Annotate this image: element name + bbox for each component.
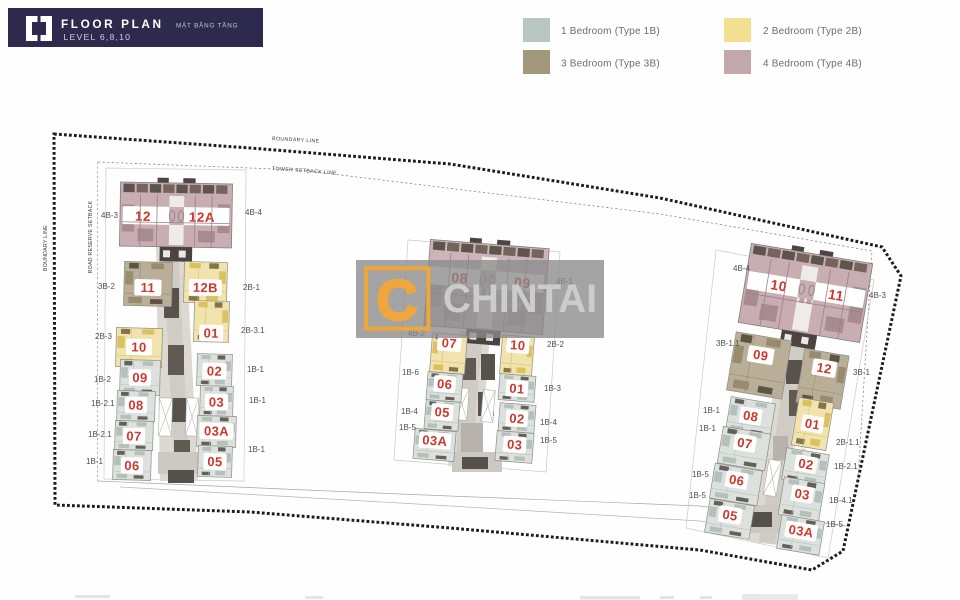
svg-text:09: 09 [132,370,148,385]
svg-text:3B-1: 3B-1 [853,368,870,377]
svg-text:12B: 12B [193,280,218,296]
svg-text:1B-2: 1B-2 [94,375,111,384]
svg-text:1B-1: 1B-1 [248,445,265,454]
svg-text:1B-2.1: 1B-2.1 [91,399,115,408]
svg-text:10: 10 [131,339,147,354]
svg-text:2 Bedroom (Type 2B): 2 Bedroom (Type 2B) [763,26,862,37]
svg-text:1B-4.1: 1B-4.1 [829,496,853,505]
svg-text:4B-4: 4B-4 [733,264,750,273]
svg-text:03A: 03A [422,432,448,449]
svg-text:1B-4: 1B-4 [540,418,557,427]
svg-text:01: 01 [203,325,219,340]
svg-text:10: 10 [510,337,526,353]
svg-text:1B-2.1: 1B-2.1 [834,462,858,471]
svg-text:2B-2: 2B-2 [547,340,564,349]
svg-text:03: 03 [794,486,812,503]
svg-text:07: 07 [126,428,142,443]
svg-text:4 Bedroom (Type 4B): 4 Bedroom (Type 4B) [763,59,862,70]
svg-text:02: 02 [207,363,223,378]
svg-text:1B-2.1: 1B-2.1 [88,430,112,439]
svg-text:CHINTAI: CHINTAI [443,277,597,321]
svg-text:05: 05 [207,454,223,469]
svg-text:1B-4: 1B-4 [401,407,418,416]
svg-text:2B-3.1: 2B-3.1 [241,326,265,335]
svg-text:09: 09 [752,347,770,364]
svg-text:2B-3: 2B-3 [95,332,112,341]
svg-text:08: 08 [128,397,144,412]
svg-text:1B-1: 1B-1 [699,424,716,433]
svg-text:FLOOR PLAN: FLOOR PLAN [61,17,164,31]
svg-text:LEVEL 6,8,10: LEVEL 6,8,10 [64,32,132,42]
svg-text:4B-3: 4B-3 [869,291,886,300]
svg-text:08: 08 [742,407,760,424]
svg-text:11: 11 [827,286,845,304]
svg-text:4B-3: 4B-3 [101,211,118,220]
svg-text:1B-1: 1B-1 [703,406,720,415]
svg-text:03: 03 [506,437,522,453]
svg-text:01: 01 [804,415,822,432]
svg-text:2B-1.1: 2B-1.1 [836,438,860,447]
svg-text:1 Bedroom (Type 1B): 1 Bedroom (Type 1B) [561,26,660,37]
svg-text:4B-4: 4B-4 [245,208,262,217]
svg-text:1B-5: 1B-5 [689,491,706,500]
svg-text:03A: 03A [204,423,230,439]
svg-text:05: 05 [434,404,450,420]
svg-text:1B-1: 1B-1 [247,365,264,374]
svg-text:1B-1: 1B-1 [86,457,103,466]
svg-text:02: 02 [509,411,525,427]
svg-text:02: 02 [797,455,815,472]
svg-text:11: 11 [140,280,155,295]
svg-text:2B-1: 2B-1 [243,283,260,292]
svg-text:1B-5: 1B-5 [692,470,709,479]
svg-text:07: 07 [736,435,754,452]
svg-text:1B-3: 1B-3 [544,384,561,393]
svg-text:1B-1: 1B-1 [249,396,266,405]
svg-text:3B-1.1: 3B-1.1 [716,339,740,348]
svg-text:12: 12 [816,360,834,377]
svg-text:1B-5: 1B-5 [399,423,416,432]
svg-text:1B-5: 1B-5 [826,520,843,529]
svg-text:06: 06 [124,458,140,473]
svg-text:05: 05 [721,506,739,523]
svg-text:06: 06 [437,376,453,392]
svg-text:3 Bedroom (Type 3B): 3 Bedroom (Type 3B) [561,59,660,70]
svg-text:01: 01 [509,381,525,397]
svg-text:ROAD RESERVE SETBACK: ROAD RESERVE SETBACK [88,200,94,273]
svg-text:06: 06 [728,472,746,489]
svg-text:1B-6: 1B-6 [402,368,419,377]
svg-text:C: C [376,269,417,333]
svg-text:BOUNDARY LINE: BOUNDARY LINE [43,225,49,271]
svg-text:3B-2: 3B-2 [98,282,115,291]
svg-text:03: 03 [209,394,225,409]
svg-text:1B-5: 1B-5 [540,436,557,445]
